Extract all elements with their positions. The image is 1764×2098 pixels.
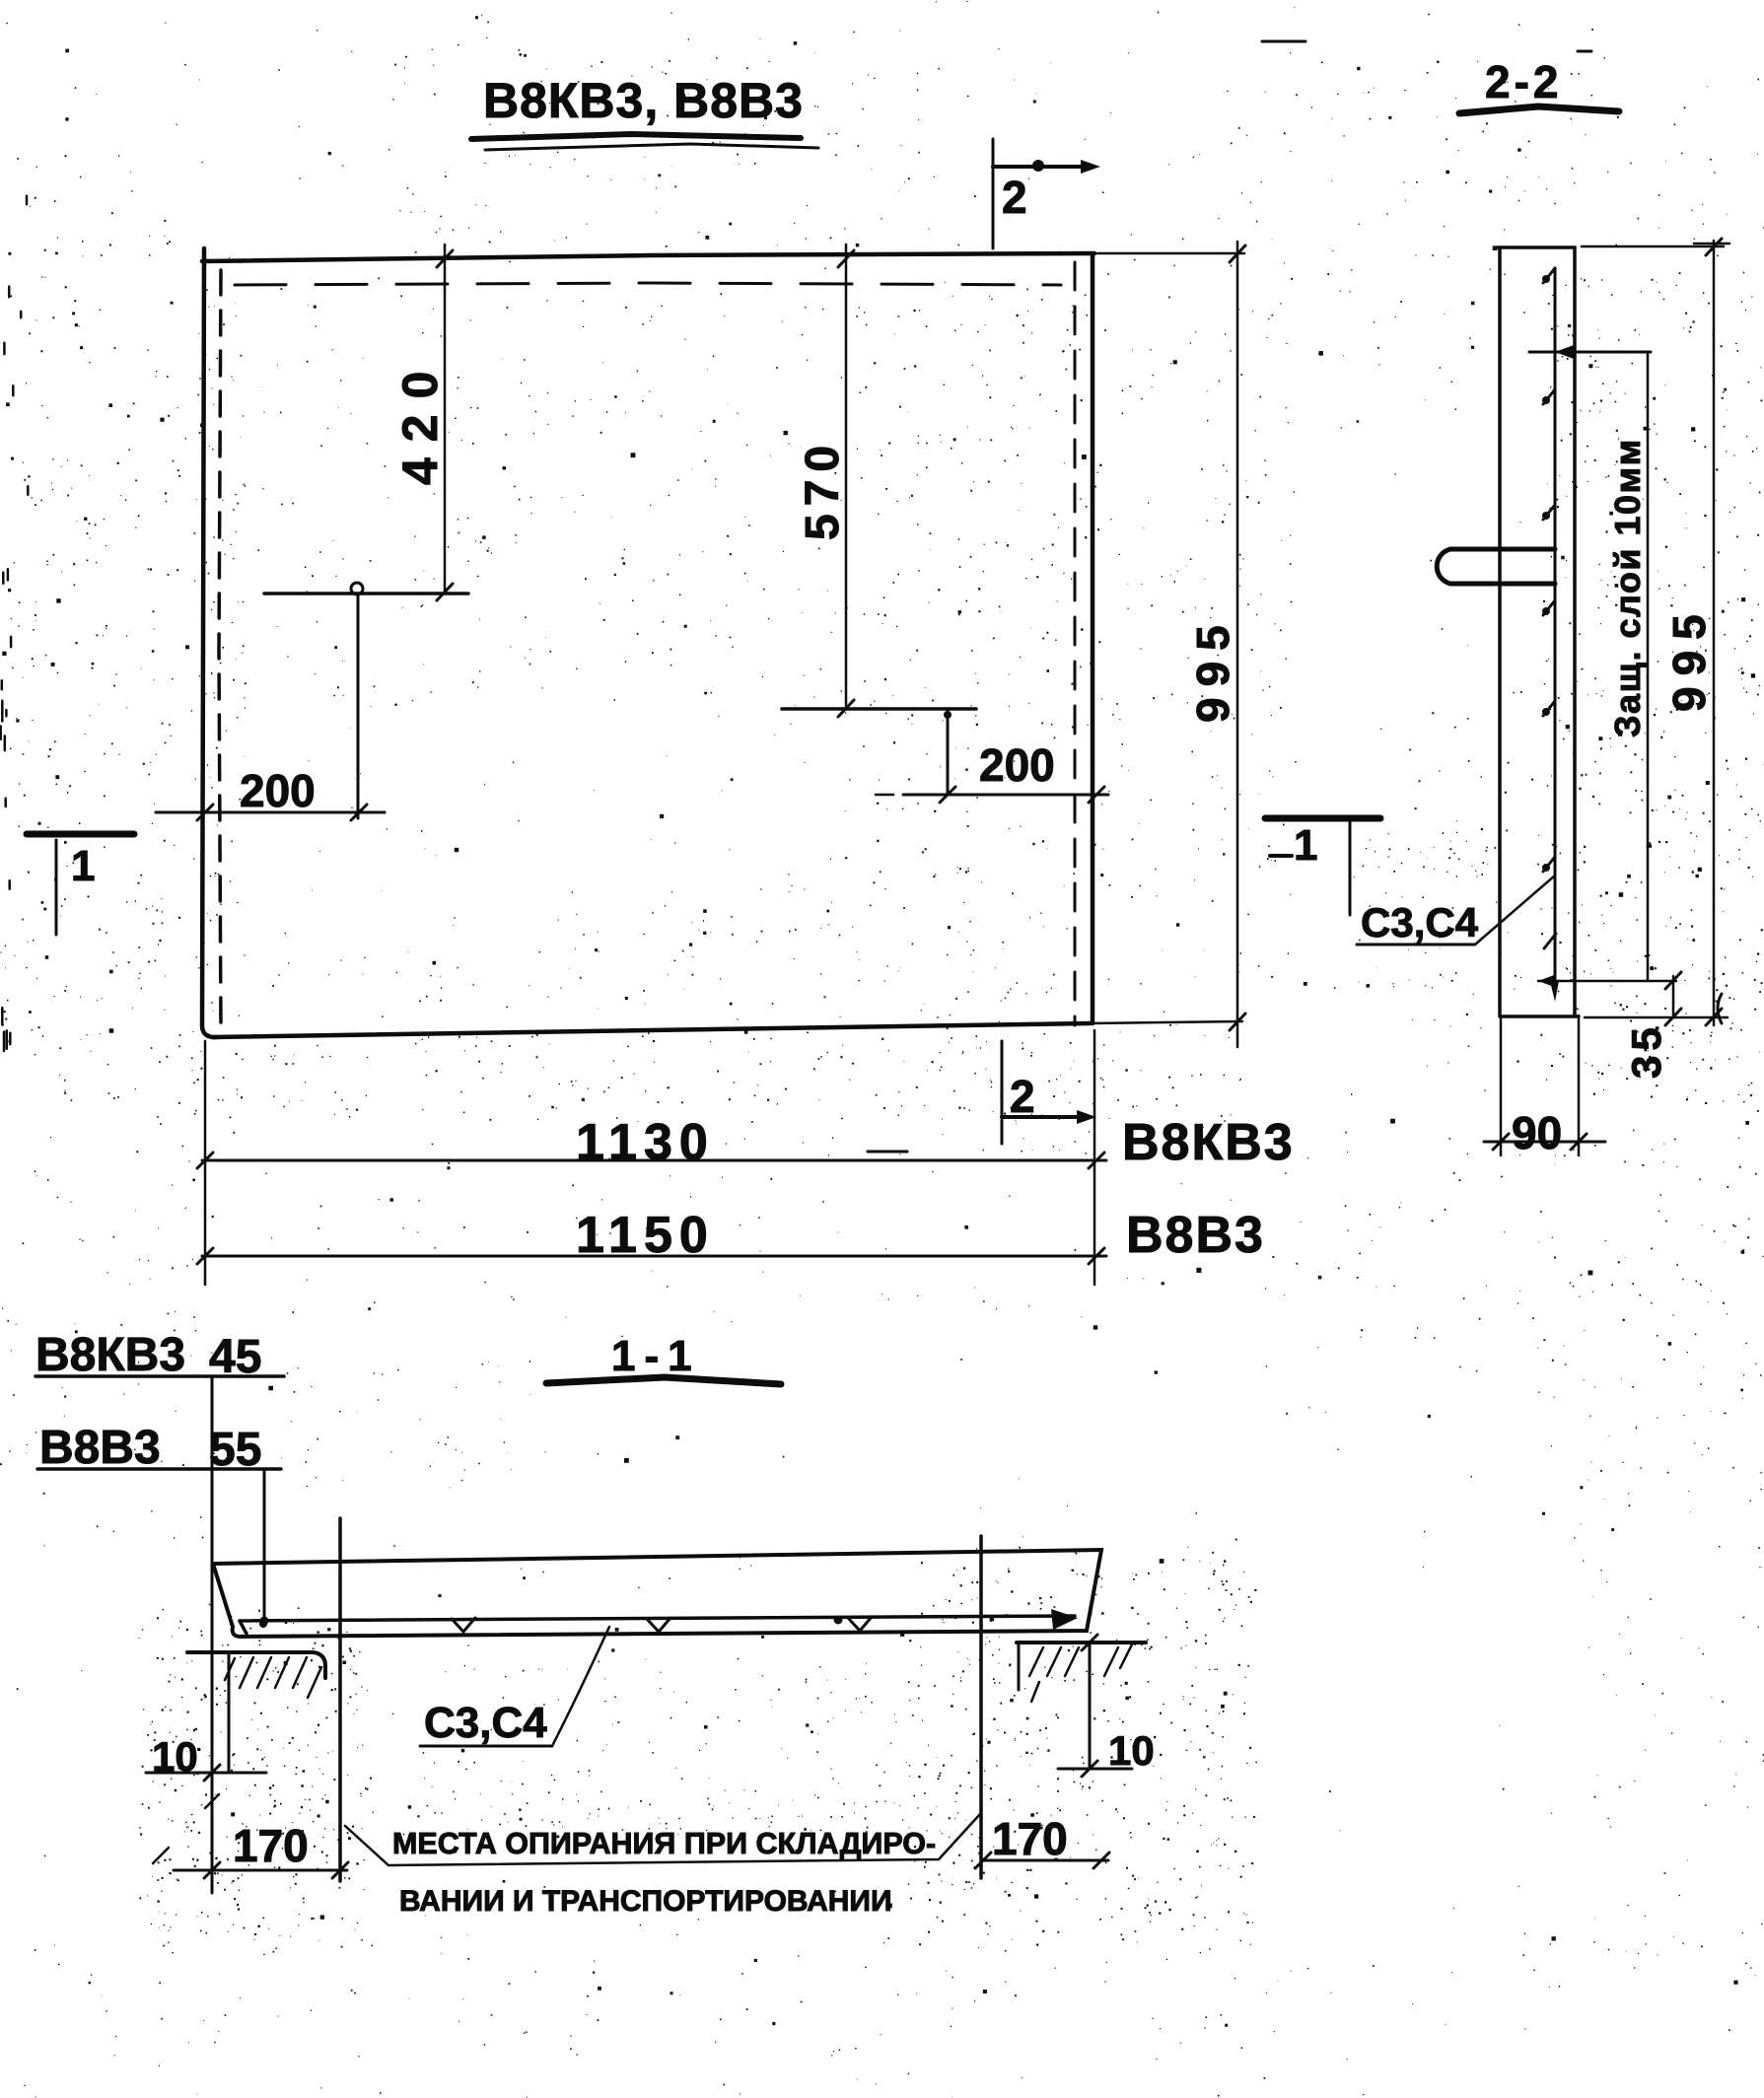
svg-text:570: 570 [797,438,849,540]
svg-text:В8КВ3, В8В3: В8КВ3, В8В3 [483,73,804,128]
svg-text:ВАНИИ И ТРАНСПОРТИРОВАНИИ: ВАНИИ И ТРАНСПОРТИРОВАНИИ [399,1885,892,1918]
svg-text:2-2: 2-2 [1485,56,1562,107]
svg-text:170: 170 [233,1820,309,1871]
svg-text:1130: 1130 [576,1114,715,1171]
svg-text:420: 420 [392,356,448,485]
svg-text:В8В3: В8В3 [1126,1207,1265,1264]
svg-text:1150: 1150 [576,1207,715,1264]
svg-text:200: 200 [240,765,316,816]
svg-text:1: 1 [1294,821,1317,870]
svg-text:В8КВ3: В8КВ3 [35,1329,185,1381]
svg-text:170: 170 [992,1813,1068,1864]
svg-text:2: 2 [1002,172,1027,223]
svg-text:1-1: 1-1 [611,1332,701,1380]
svg-text:С3,С4: С3,С4 [1361,899,1479,945]
svg-text:995: 995 [1663,603,1715,712]
svg-text:МЕСТА ОПИРАНИЯ ПРИ СКЛАДИРО-: МЕСТА ОПИРАНИЯ ПРИ СКЛАДИРО- [392,1827,936,1860]
svg-text:10: 10 [152,1733,198,1780]
svg-text:В8В3: В8В3 [39,1422,161,1474]
svg-text:В8КВ3: В8КВ3 [1122,1114,1295,1171]
svg-text:995: 995 [1187,614,1238,723]
svg-text:200: 200 [979,739,1055,791]
svg-text:10: 10 [1108,1727,1155,1774]
svg-text:90: 90 [1512,1107,1562,1158]
svg-text:Защ. слой 10мм: Защ. слой 10мм [1607,438,1648,737]
svg-text:1: 1 [71,842,95,890]
svg-text:С3,С4: С3,С4 [424,1699,547,1747]
